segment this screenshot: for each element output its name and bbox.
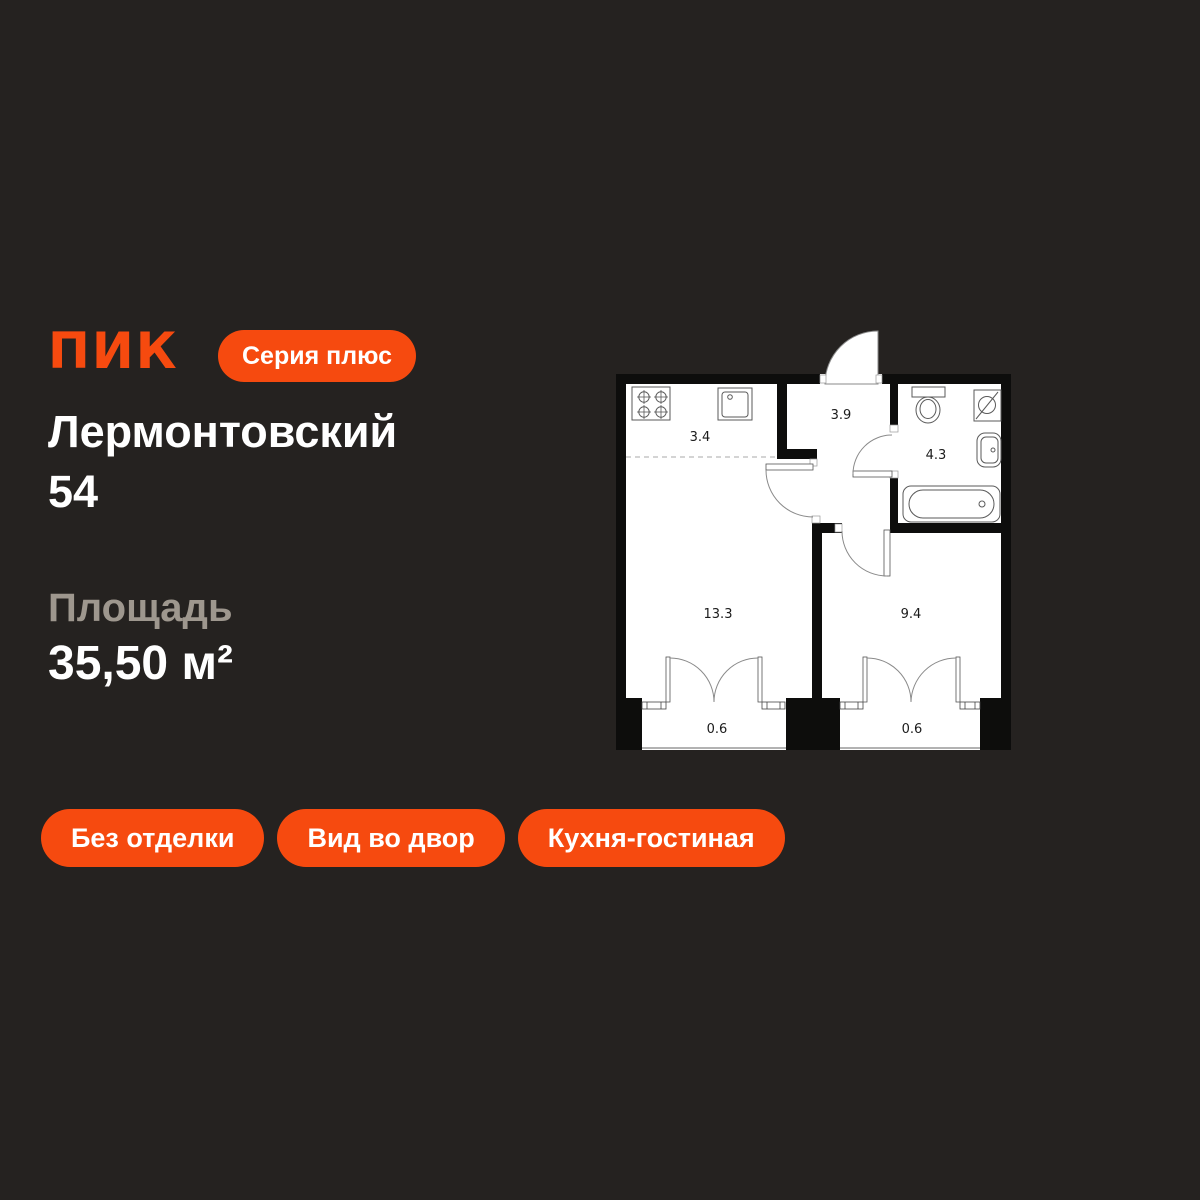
series-badge: Серия плюс — [218, 330, 416, 382]
room-label-living-room: 13.3 — [704, 607, 733, 622]
room-label-balcony-left: 0.6 — [707, 722, 728, 737]
tag-view: Вид во двор — [277, 809, 504, 867]
room-label-bathroom: 4.3 — [926, 448, 947, 463]
room-label-kitchen: 3.4 — [690, 430, 711, 445]
tag-kitchen-living-label: Кухня-гостиная — [548, 823, 755, 854]
tag-list: Без отделки Вид во двор Кухня-гостиная — [41, 809, 785, 867]
room-label-hallway: 3.9 — [831, 408, 852, 423]
tag-finish: Без отделки — [41, 809, 264, 867]
washing-machine-icon — [974, 390, 1001, 421]
series-badge-label: Серия плюс — [242, 342, 392, 371]
project-title-line1: Лермонтовский — [48, 402, 397, 462]
stove-icon — [632, 387, 670, 420]
kitchen-sink-icon — [718, 388, 752, 420]
entrance-door — [825, 331, 878, 384]
tag-kitchen-living: Кухня-гостиная — [518, 809, 785, 867]
project-title: Лермонтовский 54 — [48, 402, 397, 522]
room-label-bedroom: 9.4 — [901, 607, 922, 622]
tag-finish-label: Без отделки — [71, 823, 234, 854]
pik-logo: ПИК — [48, 322, 179, 380]
bathtub-icon — [903, 486, 1000, 522]
tag-view-label: Вид во двор — [307, 823, 474, 854]
room-label-balcony-right: 0.6 — [902, 722, 923, 737]
listing-card: ПИК Серия плюс Лермонтовский 54 Площадь … — [0, 0, 1200, 1200]
area-value: 35,50 м² — [48, 636, 233, 691]
floor-plan: 3.4 3.9 4.3 13.3 9.4 0.6 0.6 — [610, 320, 1015, 760]
bathroom-sink-icon — [977, 433, 1001, 467]
area-label: Площадь — [48, 586, 233, 631]
project-title-line2: 54 — [48, 462, 397, 522]
